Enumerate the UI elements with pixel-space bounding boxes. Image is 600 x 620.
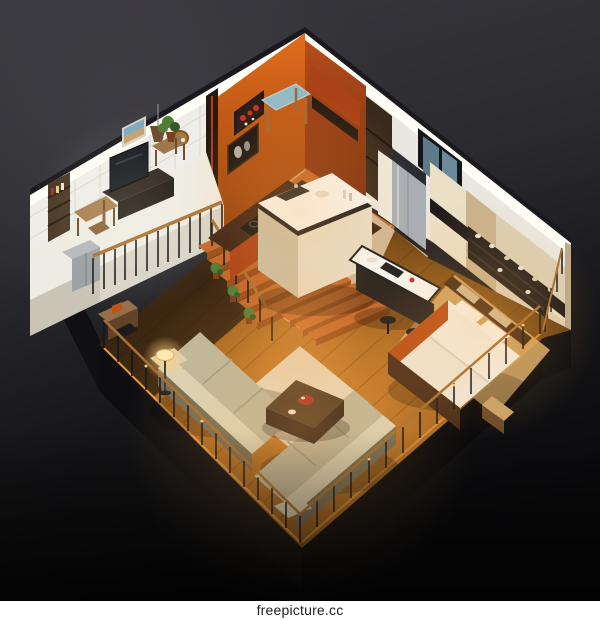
island-plate <box>315 191 329 198</box>
screenshot-root: freepicture.cc <box>0 0 600 620</box>
bookshelf <box>48 172 70 242</box>
island-bottle <box>343 190 346 199</box>
plate <box>367 258 377 263</box>
watermark-bar: freepicture.cc <box>0 601 600 620</box>
ne-wall-end-face <box>565 242 571 330</box>
wall-niche <box>378 150 392 224</box>
red-tray <box>298 395 314 405</box>
island-bottle <box>349 193 352 201</box>
white-dish <box>288 410 296 415</box>
island-faucet <box>294 184 298 188</box>
watermark-text: freepicture.cc <box>257 601 344 620</box>
apartment-3d-render <box>0 0 600 601</box>
red-item <box>410 278 415 283</box>
